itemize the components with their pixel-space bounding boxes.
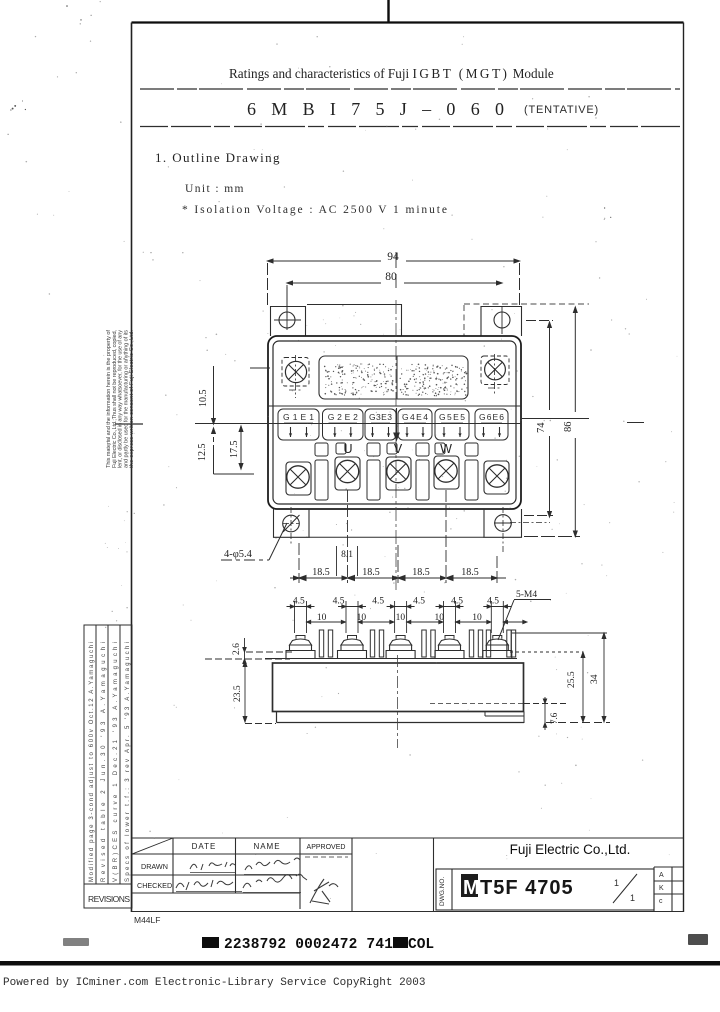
svg-text:V: V [394,442,403,456]
svg-text:4.5: 4.5 [333,597,345,607]
svg-text:10: 10 [317,613,327,623]
svg-text:M: M [463,877,480,899]
svg-text:DWG.NO.: DWG.NO. [439,877,446,906]
svg-text:REVISIONS: REVISIONS [88,894,130,904]
svg-text:Modified page 3-cond adjust to: Modified page 3-cond adjust to 600v Oct.… [89,642,95,882]
svg-text:10: 10 [472,613,482,623]
svg-text:M44LF: M44LF [134,915,160,925]
svg-text:17.5: 17.5 [229,441,240,459]
svg-text:4-φ5.4: 4-φ5.4 [224,549,253,560]
svg-text:18.5: 18.5 [412,567,430,578]
svg-text:74: 74 [536,422,547,433]
svg-text:5-M4: 5-M4 [516,590,537,600]
svg-text:2.6: 2.6 [232,643,242,655]
svg-text:the express written consent of: the express written consent of Fuji Elec… [129,330,135,468]
svg-text:K: K [659,885,664,892]
svg-text:Ratings and characteristics of: Ratings and characteristics of Fuji IGBT… [229,66,554,81]
svg-text:10: 10 [396,613,406,623]
svg-text:APPROVED: APPROVED [307,844,346,851]
svg-text:10: 10 [434,613,444,623]
svg-text:94: 94 [387,251,399,263]
svg-text:4.5: 4.5 [413,597,425,607]
svg-text:Fuji Electric Co.,Ltd.: Fuji Electric Co.,Ltd. [510,842,631,857]
svg-text:(TENTATIVE): (TENTATIVE) [524,104,599,116]
svg-text:DATE: DATE [192,842,217,851]
svg-text:c: c [659,898,663,905]
svg-text:23.5: 23.5 [233,685,243,702]
svg-text:W: W [440,442,452,456]
svg-text:DRAWN: DRAWN [141,862,168,871]
svg-text:10: 10 [357,613,367,623]
svg-text:T5F 4705: T5F 4705 [480,877,574,899]
svg-text:A: A [659,872,664,879]
svg-text:G3E3: G3E3 [369,412,392,422]
svg-text:80: 80 [385,271,397,283]
svg-text:10.5: 10.5 [198,390,209,408]
svg-text:8.1: 8.1 [341,550,353,560]
svg-text:Powered by ICminer.com Electro: Powered by ICminer.com Electronic-Librar… [3,977,425,989]
svg-text:4.5: 4.5 [487,597,499,607]
svg-text:4.5: 4.5 [451,597,463,607]
svg-text:* Isolation Voltage : AC 25: * Isolation Voltage : AC 2500 V 1 minute [182,204,449,216]
svg-text:G6E6: G6E6 [479,412,504,422]
svg-text:86: 86 [563,422,574,433]
svg-text:4.5: 4.5 [293,597,305,607]
svg-text:18.5: 18.5 [461,567,479,578]
svg-text:COL: COL [408,937,434,953]
svg-text:18.5: 18.5 [362,567,380,578]
svg-text:NAME: NAME [253,842,280,851]
svg-text:1. Outline Drawing: 1. Outline Drawing [155,150,281,165]
svg-text:4.5: 4.5 [372,597,384,607]
svg-text:1: 1 [630,893,635,903]
svg-text:18.5: 18.5 [312,567,330,578]
svg-text:Unit : mm: Unit : mm [185,183,245,195]
svg-text:2238792 0002472 741: 2238792 0002472 741 [224,937,393,953]
svg-text:1: 1 [614,878,619,888]
svg-text:6MBI75J–060: 6MBI75J–060 [247,99,519,119]
svg-text:CHECKED: CHECKED [137,881,172,890]
svg-text:U: U [343,442,352,456]
svg-text:7.6: 7.6 [549,712,559,724]
svg-text:12.5: 12.5 [197,444,208,462]
svg-text:34: 34 [590,674,600,684]
svg-text:Revised table 2 Jun.3: Revised table 2 Jun.30 '93 A.Yamaguchi [101,642,107,882]
svg-text:25.5: 25.5 [567,671,577,688]
